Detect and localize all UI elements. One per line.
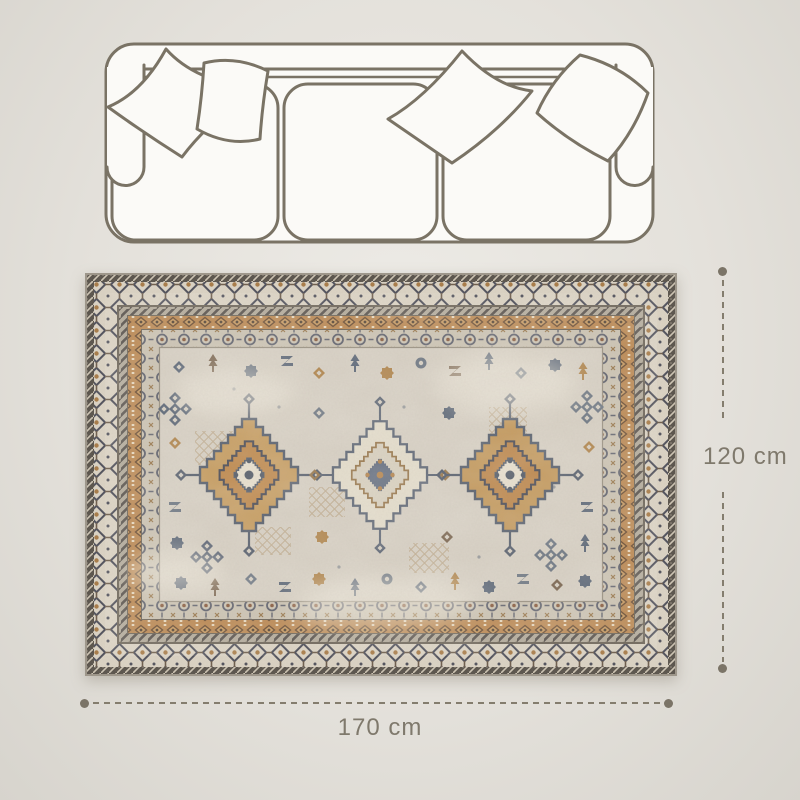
height-dashed-line-bottom [722,492,724,662]
dimension-endpoint-dot [718,664,727,673]
width-label: 170 cm [300,714,460,742]
product-dimension-diagram: 120 cm 170 cm [0,0,800,800]
dimension-endpoint-dot [664,699,673,708]
dimension-endpoint-dot [718,267,727,276]
rug-image [85,273,677,676]
height-label: 120 cm [703,443,788,471]
width-dashed-line [93,702,660,704]
height-dashed-line-top [722,280,724,423]
sofa-top-view-icon [100,37,660,249]
pillow-square-left-icon [197,60,268,141]
dimension-endpoint-dot [80,699,89,708]
